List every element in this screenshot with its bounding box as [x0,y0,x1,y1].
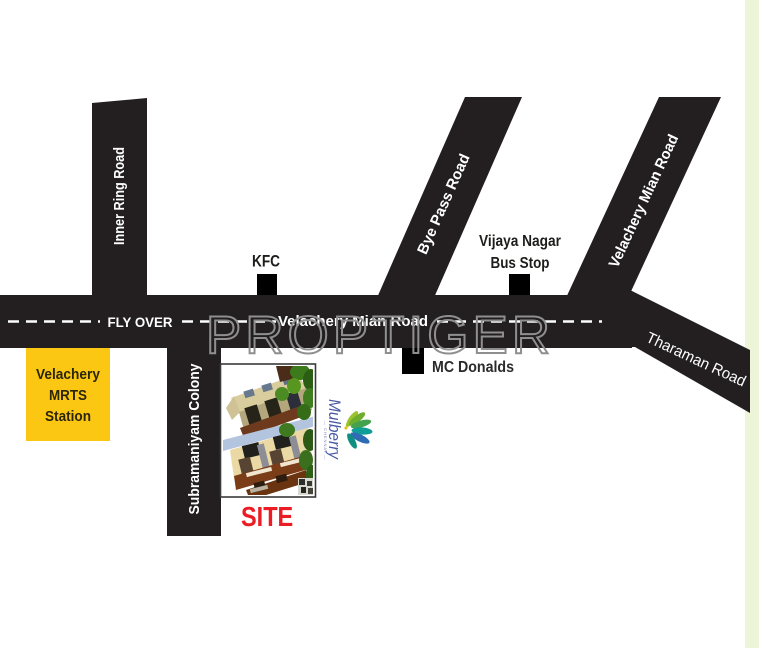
svg-text:SITE: SITE [241,502,293,532]
svg-text:MRTS: MRTS [49,388,87,404]
svg-text:Subramaniyam Colony: Subramaniyam Colony [186,363,203,515]
svg-text:Bus Stop: Bus Stop [491,255,550,272]
svg-text:Velachery: Velachery [36,367,100,383]
svg-text:KFC: KFC [252,252,280,271]
svg-text:FLY OVER: FLY OVER [108,314,173,330]
svg-text:Vijaya Nagar: Vijaya Nagar [479,233,561,250]
svg-text:PROPTIGER: PROPTIGER [206,306,554,365]
svg-text:— CHENNAI —: — CHENNAI — [323,421,328,460]
svg-text:Station: Station [45,409,91,425]
svg-text:Inner Ring Road: Inner Ring Road [111,147,128,245]
